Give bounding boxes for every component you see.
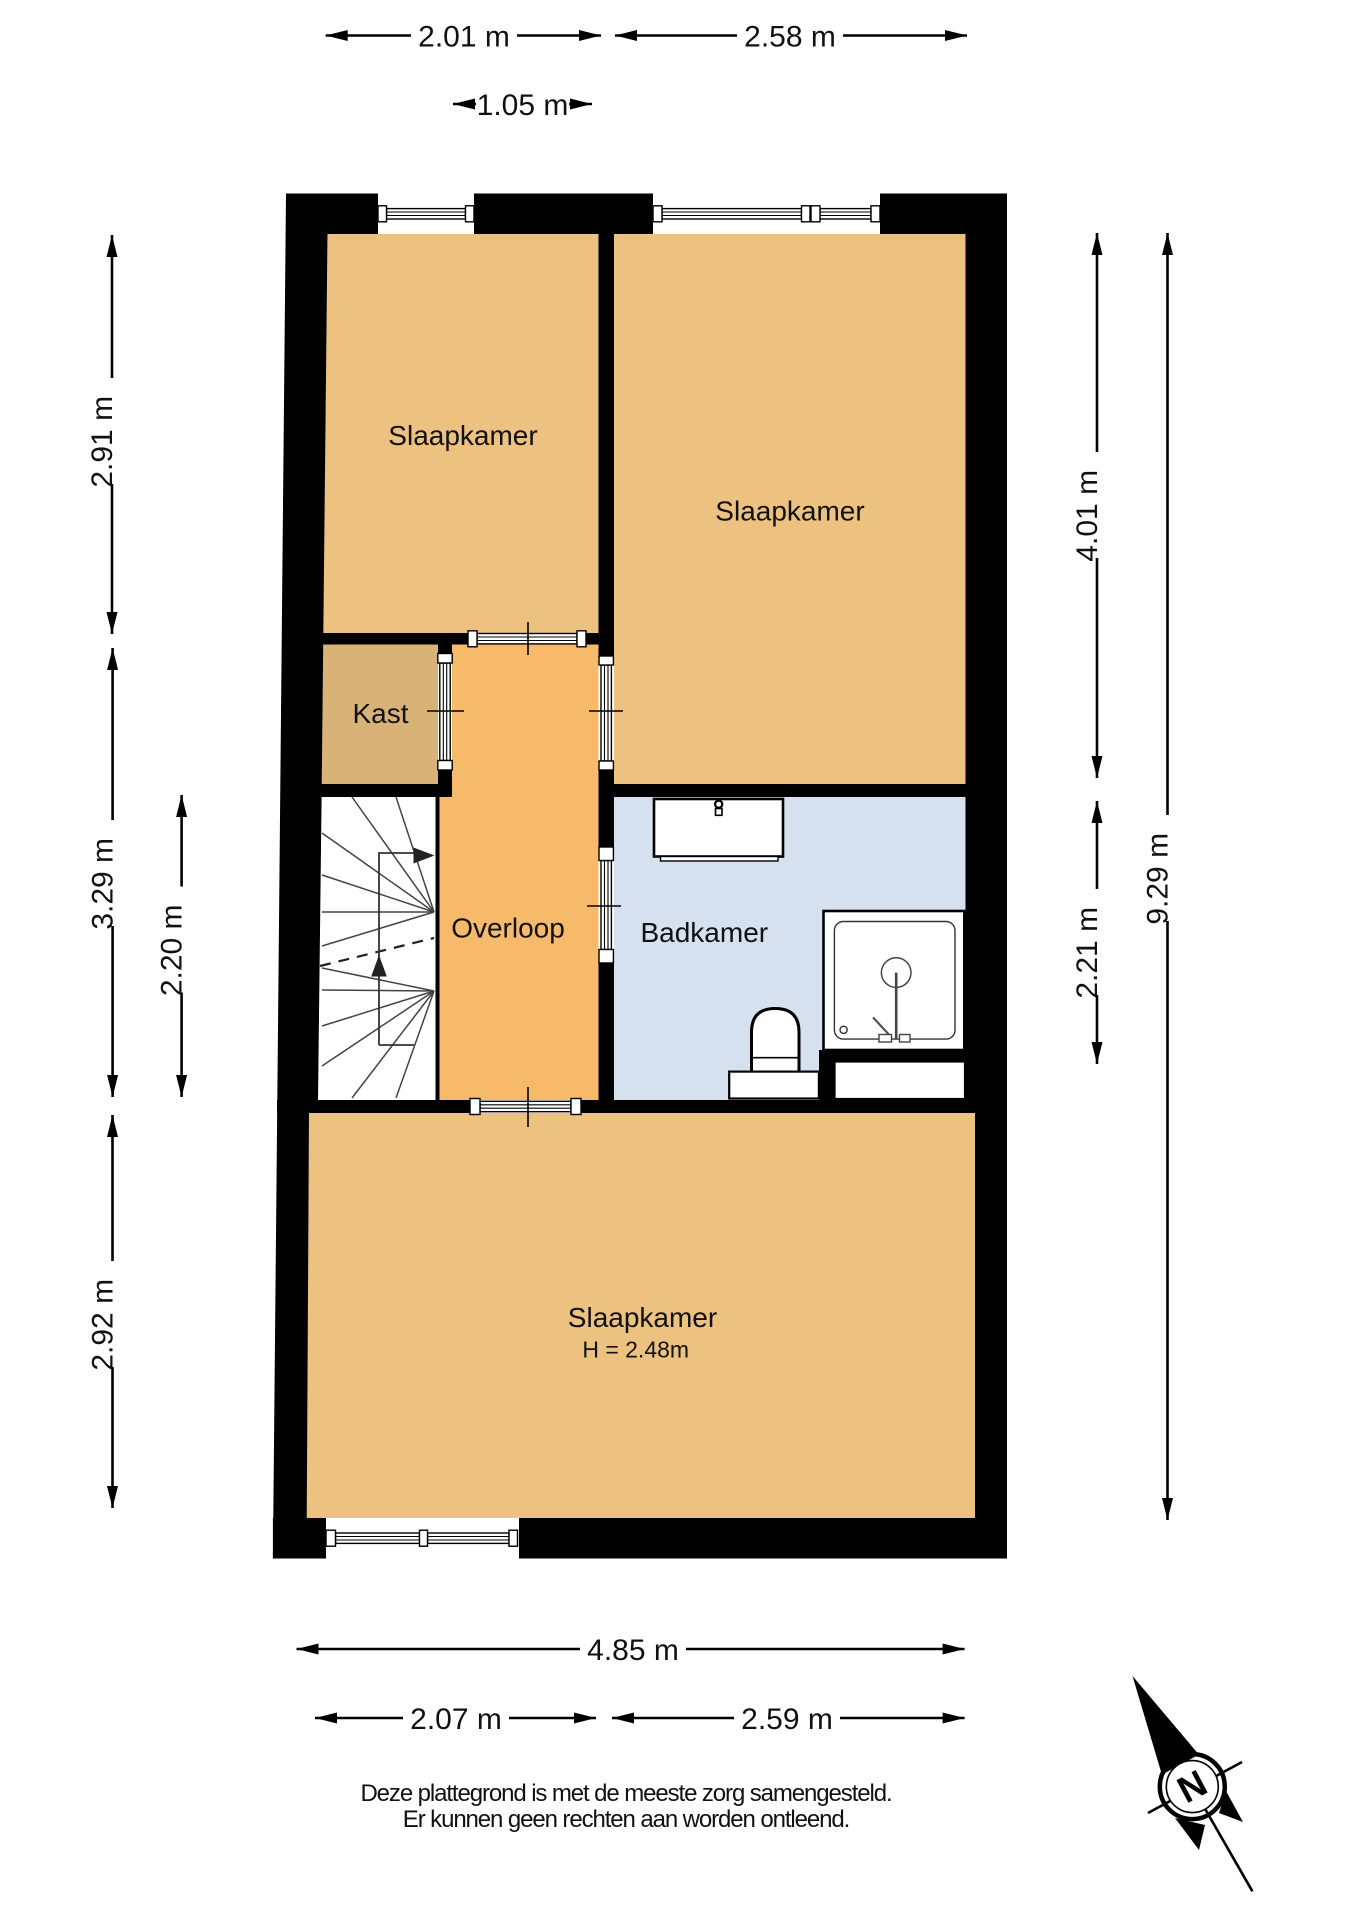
svg-text:Deze plattegrond is met de mee: Deze plattegrond is met de meeste zorg s… [360,1780,891,1807]
svg-text:2.20 m: 2.20 m [156,904,189,996]
svg-text:2.59 m: 2.59 m [741,1703,833,1736]
svg-text:9.29 m: 9.29 m [1142,833,1175,925]
svg-text:1.05 m: 1.05 m [477,89,569,122]
svg-text:H = 2.48m: H = 2.48m [582,1337,689,1363]
svg-text:4.85 m: 4.85 m [587,1634,679,1667]
svg-text:2.91 m: 2.91 m [86,396,119,488]
svg-text:2.01 m: 2.01 m [418,20,510,53]
svg-text:Er kunnen geen rechten aan wor: Er kunnen geen rechten aan worden ontlee… [403,1806,849,1833]
svg-text:2.07 m: 2.07 m [410,1703,502,1736]
svg-text:3.29 m: 3.29 m [87,838,120,930]
svg-text:Slaapkamer: Slaapkamer [715,496,864,527]
svg-text:Overloop: Overloop [451,913,565,944]
svg-text:Kast: Kast [352,698,408,729]
svg-text:2.92 m: 2.92 m [87,1279,120,1371]
svg-text:4.01 m: 4.01 m [1071,470,1104,562]
svg-text:Badkamer: Badkamer [640,917,768,948]
svg-text:Slaapkamer: Slaapkamer [568,1302,717,1333]
svg-text:2.21 m: 2.21 m [1071,907,1104,999]
svg-text:Slaapkamer: Slaapkamer [388,420,537,451]
svg-text:2.58 m: 2.58 m [744,20,836,53]
